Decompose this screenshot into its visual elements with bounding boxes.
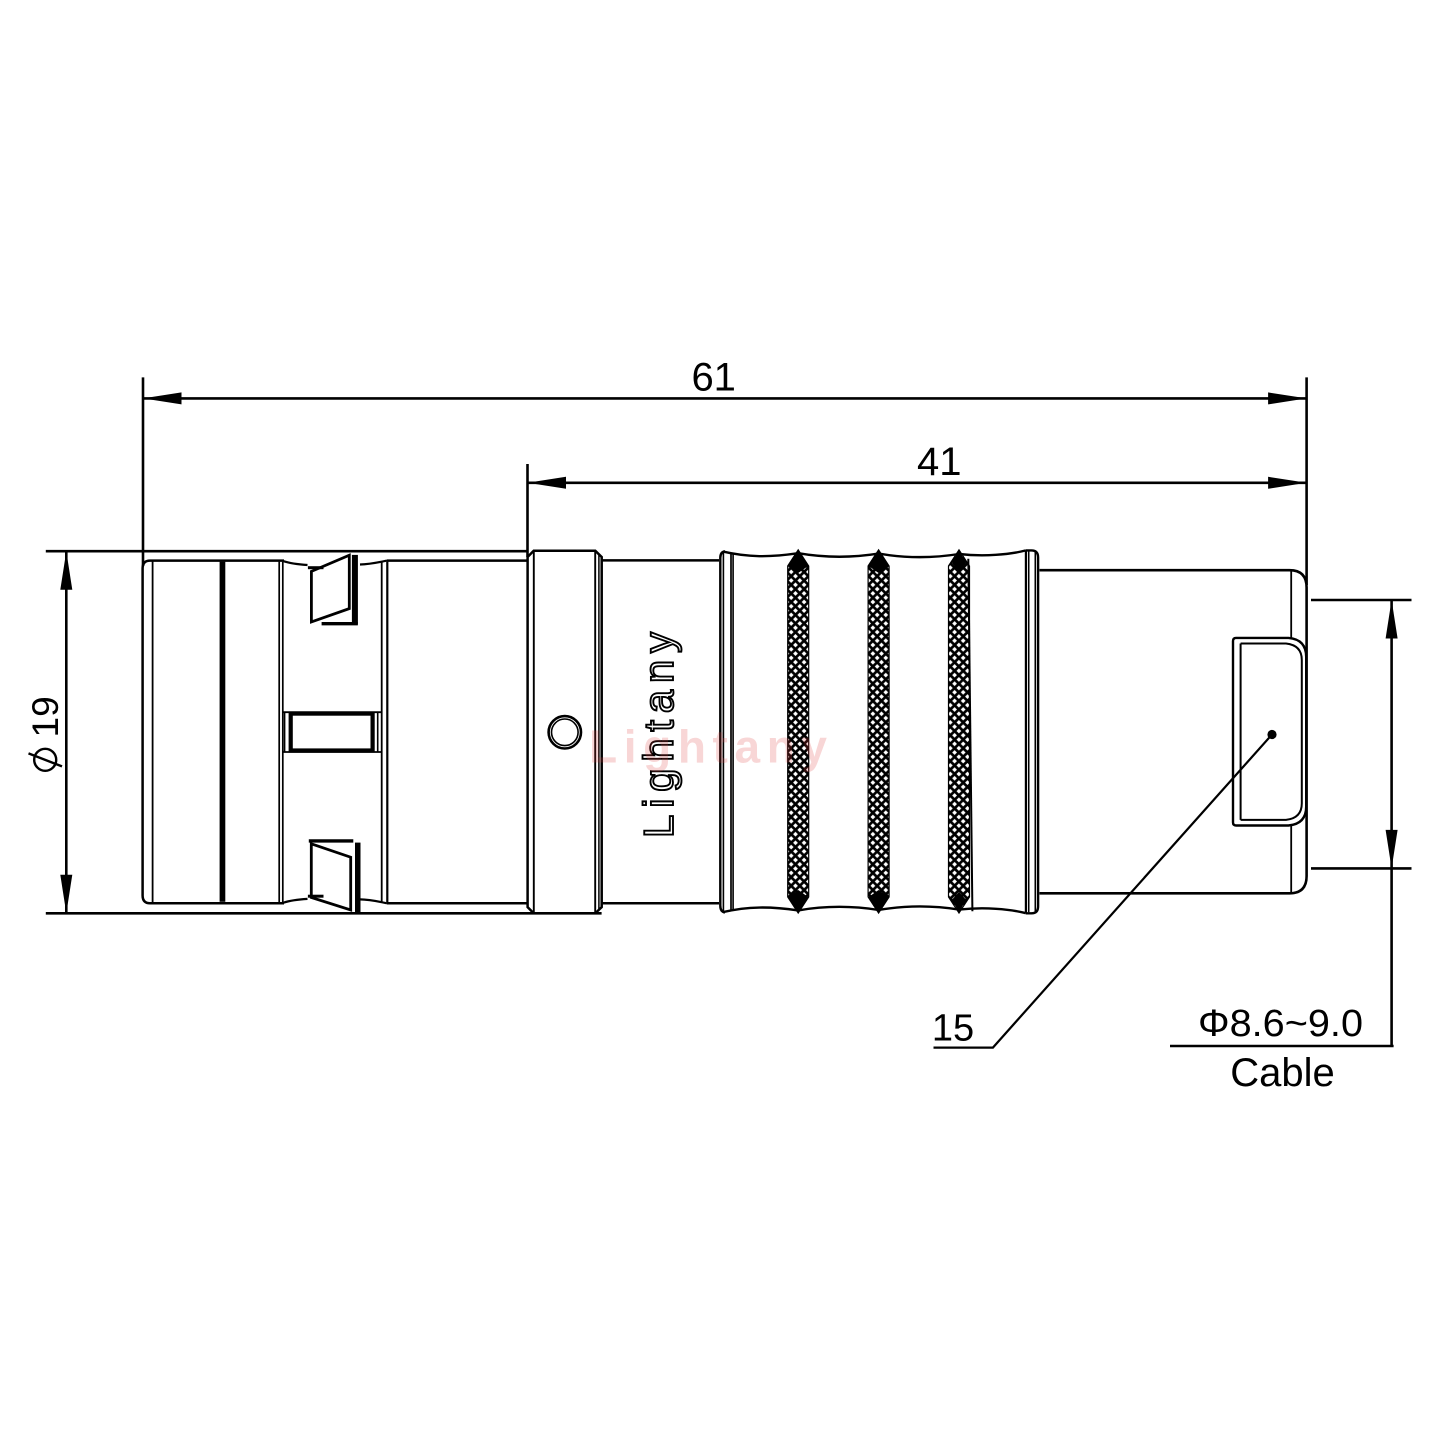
svg-text:19: 19 — [25, 696, 66, 737]
svg-text:Cable: Cable — [1230, 1051, 1335, 1095]
svg-text:61: 61 — [691, 356, 736, 400]
svg-text:Φ8.6~9.0: Φ8.6~9.0 — [1198, 1003, 1363, 1045]
svg-text:41: 41 — [917, 440, 962, 484]
svg-text:15: 15 — [932, 1008, 974, 1050]
